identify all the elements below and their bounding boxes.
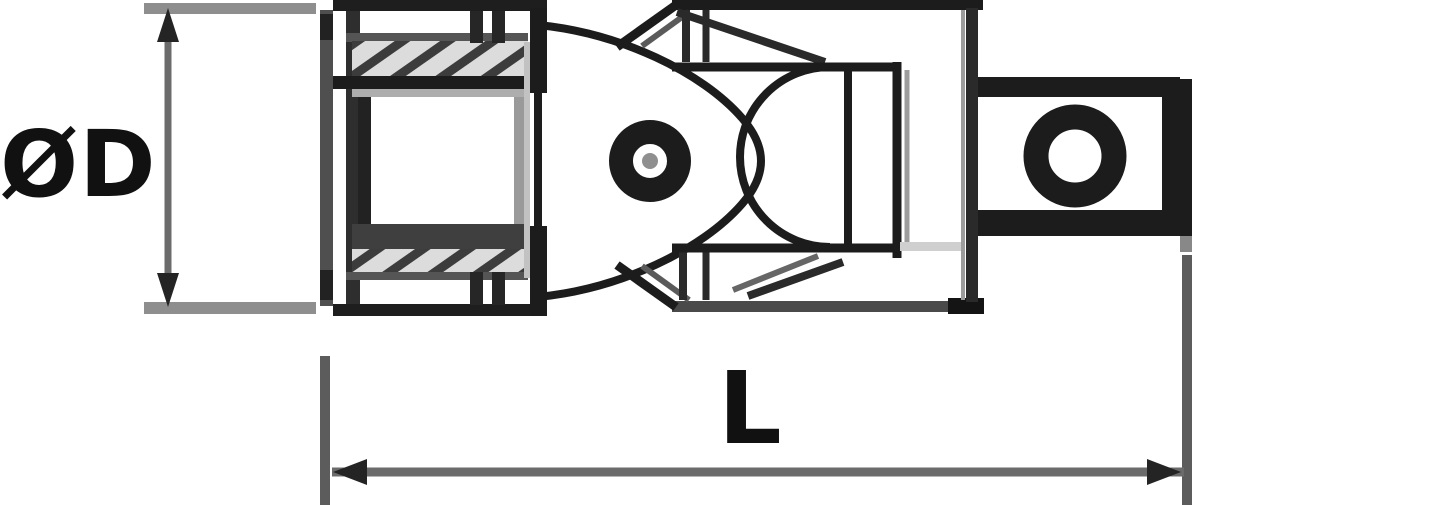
- rear-bottom-edge: [672, 301, 983, 312]
- rear-arm-face-top: [677, 12, 825, 62]
- knurl-band-top: [352, 41, 528, 77]
- pivot-pin-center: [642, 153, 658, 169]
- extension-line-bottom: [144, 302, 316, 314]
- length-label: L: [718, 350, 782, 467]
- collar-band-top: [530, 8, 547, 93]
- square-drive-corner-shade: [1180, 236, 1192, 252]
- collar-rib-bottom-2: [492, 272, 505, 305]
- socket-end: [320, 0, 547, 316]
- diameter-label: ØD: [0, 111, 157, 218]
- socket-back-ring-top: [320, 14, 333, 40]
- technical-drawing: ØD L: [0, 0, 1440, 505]
- collar-rib-top-1: [470, 11, 483, 43]
- square-hole-right-edge: [514, 97, 524, 225]
- arrow-right: [1147, 459, 1181, 485]
- cylinder-lower-shade: [900, 242, 964, 251]
- socket-back-ring: [320, 10, 333, 306]
- collar-rib-top-2: [492, 11, 505, 43]
- collar-band-bottom: [530, 226, 547, 316]
- ball-detent-hole: [1036, 117, 1114, 195]
- square-hole: [358, 97, 524, 225]
- collar-rib-bottom-1: [470, 272, 483, 305]
- rear-top-edge: [672, 0, 983, 10]
- socket-bottom-edge: [333, 304, 547, 316]
- square-hole-bottom-band: [352, 224, 528, 249]
- square-drive: [978, 77, 1192, 252]
- dimension-diameter: ØD: [0, 3, 316, 314]
- socket-top-edge: [333, 0, 547, 11]
- knurl-band-bottom: [352, 249, 528, 273]
- square-drive-end-face: [1162, 79, 1192, 236]
- arrow-down: [157, 273, 179, 307]
- square-hole-left-edge: [358, 97, 371, 225]
- square-hole-top-shade: [352, 89, 528, 97]
- square-drive-bottom-edge: [978, 210, 1186, 236]
- square-drive-top-edge: [978, 77, 1180, 97]
- extension-line-top: [144, 3, 316, 14]
- body-separator-line: [333, 76, 547, 89]
- collar-highlight: [524, 42, 530, 278]
- socket-back-ring-bottom: [320, 270, 333, 300]
- arrow-left: [333, 459, 367, 485]
